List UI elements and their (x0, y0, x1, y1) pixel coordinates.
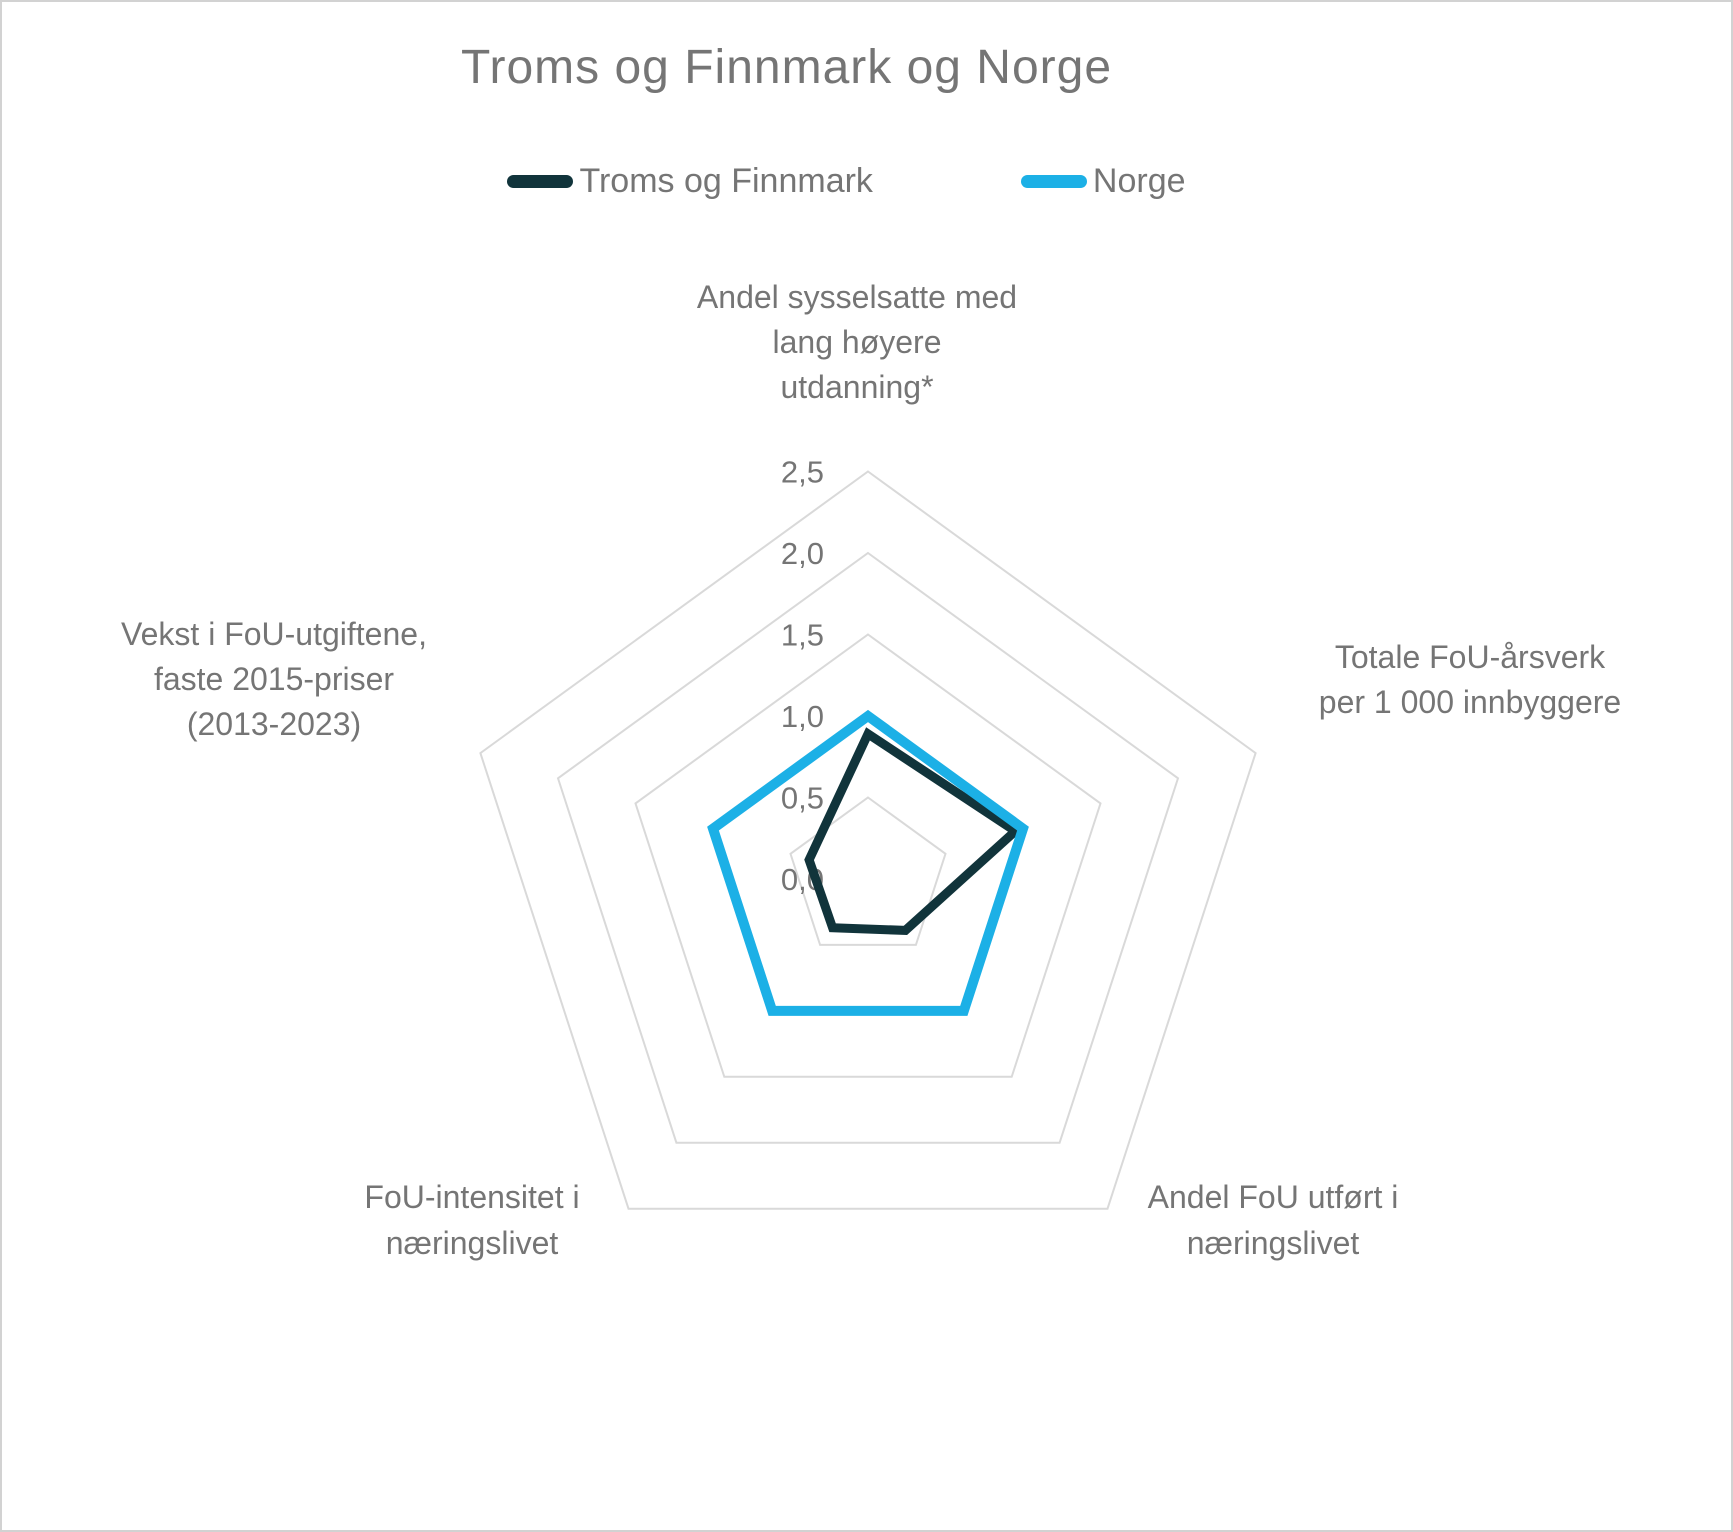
axis-category-label: Vekst i FoU-utgiftene,faste 2015-priser(… (121, 616, 427, 742)
axis-category-label: Andel sysselsatte medlang høyereutdannin… (697, 279, 1017, 405)
axis-category-label: Totale FoU-årsverkper 1 000 innbyggere (1319, 639, 1621, 720)
grid-ring (480, 472, 1255, 1209)
r-axis-tick-label: 2,0 (781, 536, 824, 571)
grid-ring (558, 553, 1178, 1143)
r-axis-tick-label: 1,0 (781, 699, 824, 734)
r-axis-tick-label: 2,5 (781, 455, 824, 490)
radar-chart: 0,00,51,01,52,02,5Andel sysselsatte medl… (2, 2, 1733, 1532)
axis-category-label: Andel FoU utført inæringslivet (1148, 1179, 1399, 1261)
series-polygon-troms-og-finnmark (809, 734, 1015, 931)
chart-frame: Troms og Finnmark og Norge Troms og Finn… (0, 0, 1733, 1532)
r-axis-tick-label: 1,5 (781, 618, 824, 653)
r-axis-tick-label: 0,5 (781, 781, 824, 816)
axis-category-label: FoU-intensitet inæringslivet (364, 1179, 579, 1261)
